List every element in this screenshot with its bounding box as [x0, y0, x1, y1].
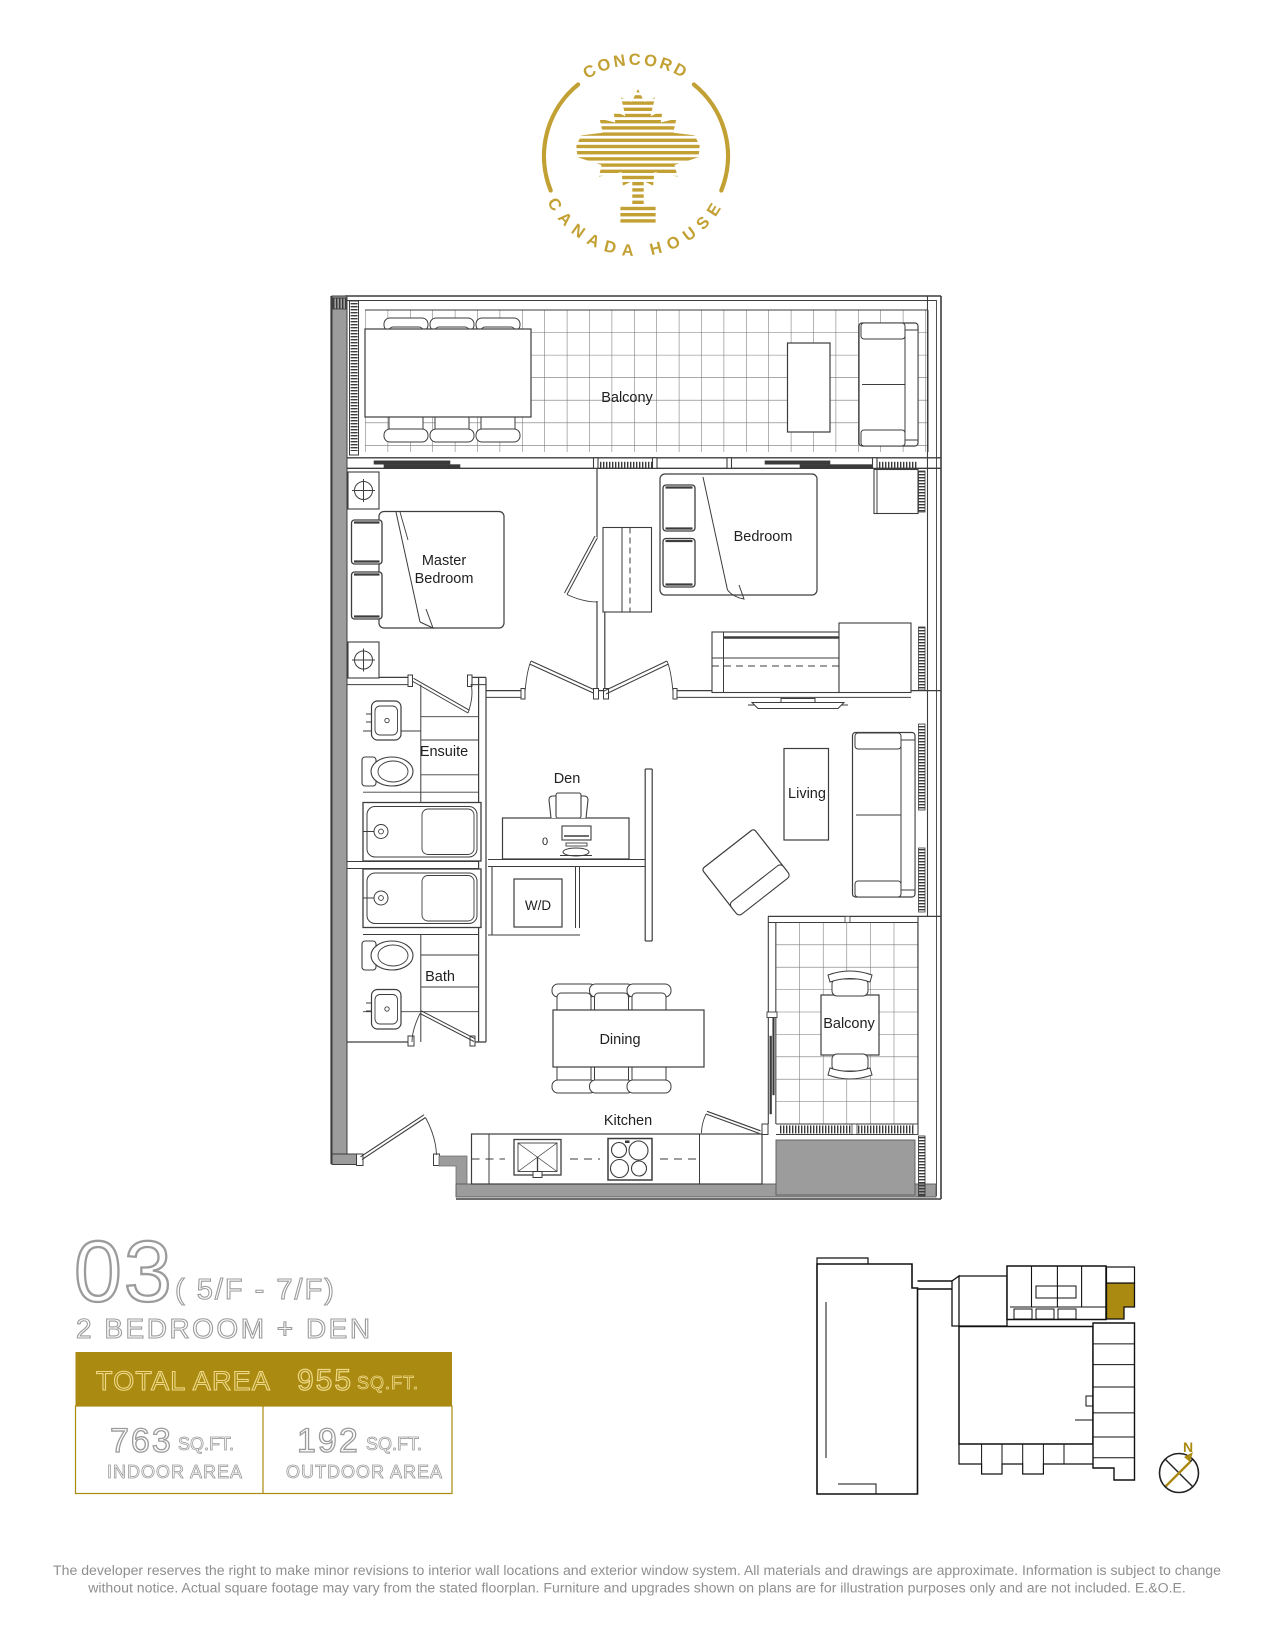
svg-text:The developer reserves the rig: The developer reserves the right to make… [53, 1562, 1221, 1578]
svg-text:OUTDOOR AREA: OUTDOOR AREA [286, 1462, 443, 1482]
svg-text:( 5/F - 7/F): ( 5/F - 7/F) [175, 1274, 336, 1306]
svg-text:N: N [1183, 1439, 1193, 1455]
svg-text:SQ.FT.: SQ.FT. [178, 1434, 234, 1454]
svg-text:192: 192 [297, 1422, 360, 1460]
svg-text:INDOOR AREA: INDOOR AREA [107, 1462, 243, 1482]
svg-text:0: 0 [542, 836, 548, 848]
svg-text:Ensuite: Ensuite [420, 744, 468, 760]
svg-text:Master: Master [422, 553, 466, 569]
svg-text:TOTAL AREA: TOTAL AREA [96, 1366, 271, 1396]
svg-text:2 BEDROOM + DEN: 2 BEDROOM + DEN [76, 1313, 373, 1344]
svg-text:Bedroom: Bedroom [415, 571, 474, 587]
svg-text:03: 03 [74, 1224, 174, 1320]
svg-text:955: 955 [297, 1364, 353, 1397]
svg-text:Living: Living [788, 786, 826, 802]
svg-text:763: 763 [110, 1422, 173, 1460]
svg-text:Balcony: Balcony [823, 1016, 875, 1032]
svg-text:Dining: Dining [599, 1032, 640, 1048]
svg-text:Den: Den [554, 771, 581, 787]
svg-text:without notice. Actual square: without notice. Actual square footage ma… [87, 1580, 1186, 1596]
svg-text:SQ.FT.: SQ.FT. [366, 1434, 422, 1454]
svg-text:W/D: W/D [525, 898, 551, 913]
svg-text:Balcony: Balcony [601, 390, 653, 406]
svg-text:Kitchen: Kitchen [604, 1113, 652, 1129]
svg-text:SQ.FT.: SQ.FT. [357, 1373, 419, 1393]
svg-text:Bath: Bath [425, 969, 455, 985]
svg-text:Bedroom: Bedroom [734, 529, 793, 545]
